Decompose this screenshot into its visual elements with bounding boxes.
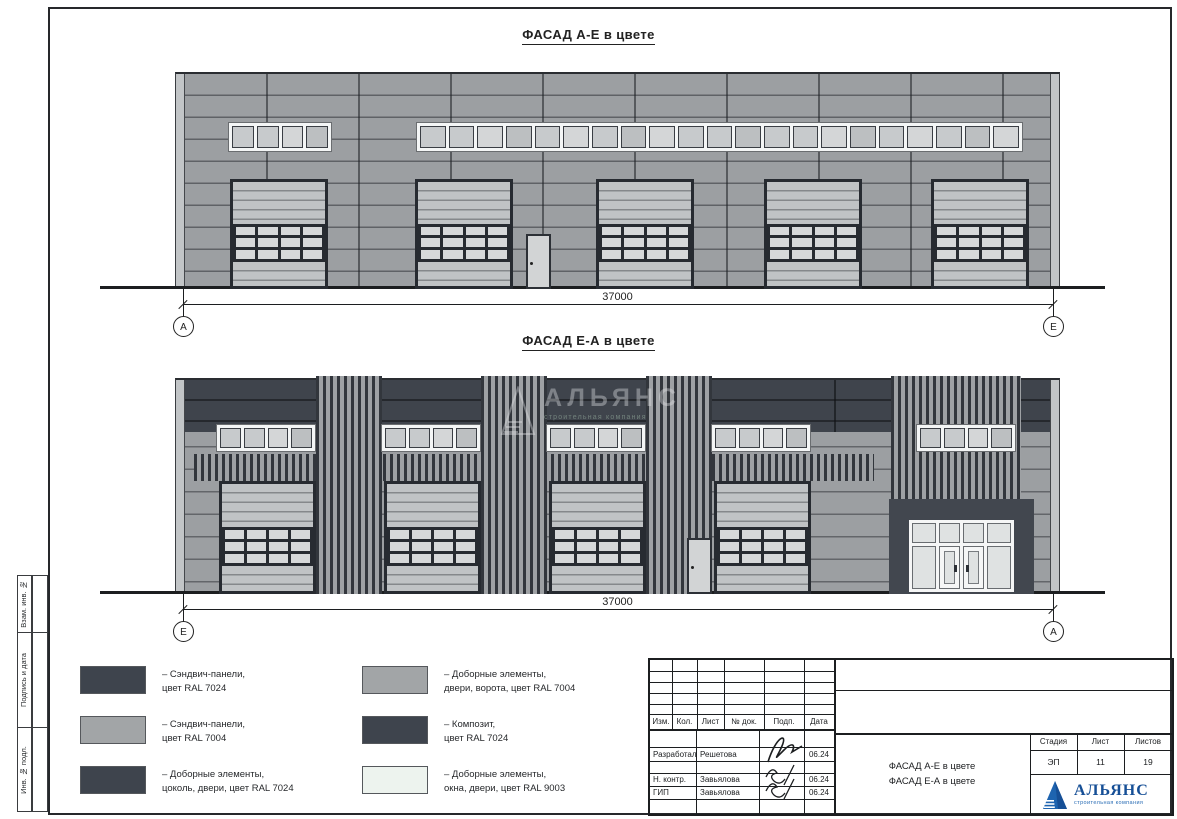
window-pane (920, 428, 941, 448)
door-window-pane (412, 554, 431, 563)
door-slats (233, 182, 325, 224)
tb-name: Завьялова (697, 786, 762, 799)
door-window-pane (281, 238, 300, 247)
window-pane (244, 428, 265, 448)
door-window-grid (233, 224, 325, 262)
tb-sheet-label: Лист (1077, 733, 1124, 750)
door-window-pane (742, 554, 761, 563)
door-window-pane (937, 238, 956, 247)
window-pane (282, 126, 304, 148)
door-window-pane (720, 554, 739, 563)
window-pane (268, 428, 289, 448)
sectional-door (384, 481, 481, 594)
sectional-door (931, 179, 1029, 289)
door-window-pane (720, 530, 739, 539)
margin-cell-empty (32, 575, 48, 633)
window-pane (456, 428, 477, 448)
door-window-pane (488, 227, 507, 236)
window-pane (850, 126, 876, 148)
door-window-pane (466, 250, 485, 259)
door-slats (418, 262, 510, 286)
door-window-pane (815, 250, 834, 259)
window-pane (257, 126, 279, 148)
door-window-pane (621, 530, 640, 539)
tb-col-izm: Изм. (650, 714, 672, 729)
door-slats (233, 262, 325, 286)
window-pane (968, 428, 989, 448)
door-window-pane (236, 238, 255, 247)
door-slats (934, 262, 1026, 286)
tb-name: Завьялова (697, 773, 762, 786)
door-window-pane (236, 227, 255, 236)
window-pane (306, 126, 328, 148)
door-window-pane (770, 227, 789, 236)
margin-label: Подпись и дата (19, 653, 28, 707)
tb-stage-label: Стадия (1030, 733, 1077, 750)
door-slats (552, 566, 643, 591)
tb-sheets-label: Листов (1124, 733, 1172, 750)
door-window-pane (577, 530, 596, 539)
window-pane (477, 126, 503, 148)
window-pane (449, 126, 475, 148)
door-window-pane (599, 542, 618, 551)
door-window-pane (599, 554, 618, 563)
door-slats (418, 182, 510, 224)
window-pane (433, 428, 454, 448)
sectional-door (549, 481, 646, 594)
window-pane (739, 428, 760, 448)
window-pane (715, 428, 736, 448)
door-window-pane (555, 530, 574, 539)
sectional-door (219, 481, 316, 594)
window-pane (621, 126, 647, 148)
door-window-pane (247, 542, 266, 551)
entrance-door-leaf (963, 546, 984, 589)
door-window-pane (443, 250, 462, 259)
tb-role: ГИП (650, 786, 699, 799)
door-slats (222, 484, 313, 527)
window-pane (764, 126, 790, 148)
door-window-pane (225, 554, 244, 563)
door-window-pane (291, 554, 310, 563)
window-pane (506, 126, 532, 148)
window-pane (907, 126, 933, 148)
pyramid-logo-icon (1042, 780, 1068, 810)
tb-role: Разработал (650, 747, 699, 761)
window-pane (944, 428, 965, 448)
door-window-pane (421, 250, 440, 259)
ribbon-window (416, 122, 1023, 152)
margin-cell-empty (32, 632, 48, 728)
legend-item-label: – Сэндвич-панели, цвет RAL 7024 (162, 668, 245, 696)
door-window-pane (647, 238, 666, 247)
door-window-pane (225, 530, 244, 539)
dimension-line (183, 609, 1054, 610)
window-pane (550, 428, 571, 448)
tb-col-doc: № док. (724, 714, 764, 729)
door-window-grid (418, 224, 510, 262)
tb-stage-value: ЭП (1030, 750, 1077, 774)
ribbon-window (228, 122, 332, 152)
batten-cluster (316, 376, 382, 594)
window-pane (409, 428, 430, 448)
window-pane (563, 126, 589, 148)
door-window-pane (669, 238, 688, 247)
facade-ae-title: ФАСАД А-Е в цвете (0, 27, 1177, 42)
door-window-pane (959, 238, 978, 247)
door-window-pane (247, 554, 266, 563)
tb-date: 06.24 (804, 773, 834, 786)
door-window-grid (552, 527, 643, 567)
door-window-pane (621, 554, 640, 563)
door-window-pane (421, 238, 440, 247)
company-name: АЛЬЯНС (1074, 783, 1149, 799)
sidelight-pane (912, 546, 936, 589)
door-window-pane (770, 250, 789, 259)
door-window-pane (456, 554, 475, 563)
door-window-pane (982, 250, 1001, 259)
door-slats (934, 182, 1026, 224)
window-pane (598, 428, 619, 448)
entrance-door-leaf (939, 546, 960, 589)
corner-flashing (1050, 74, 1059, 286)
transom-pane (939, 523, 960, 543)
window-pane (763, 428, 784, 448)
door-window-pane (434, 554, 453, 563)
window-pane (232, 126, 254, 148)
door-window-pane (303, 227, 322, 236)
door-window-pane (258, 250, 277, 259)
window-pane (786, 428, 807, 448)
legend-swatch-ral7024 (80, 766, 146, 794)
door-window-pane (937, 227, 956, 236)
tb-date: 06.24 (804, 747, 834, 761)
margin-label: Взам. инв. № (19, 580, 28, 627)
door-window-pane (555, 542, 574, 551)
door-window-pane (647, 250, 666, 259)
tb-name: Решетова (697, 747, 762, 761)
door-window-grid (599, 224, 691, 262)
window-pane (420, 126, 446, 148)
door-slats (552, 484, 643, 527)
personnel-door (687, 538, 712, 594)
door-window-pane (1004, 250, 1023, 259)
door-window-grid (222, 527, 313, 567)
margin-cell-empty (32, 727, 48, 812)
window-pane (574, 428, 595, 448)
margin-label: Инв. № подл. (19, 746, 28, 794)
window-pane (385, 428, 406, 448)
axis-bubble-e: Е (173, 621, 194, 642)
legend-item-label: – Композит, цвет RAL 7024 (444, 718, 508, 746)
door-window-pane (602, 238, 621, 247)
door-window-pane (443, 227, 462, 236)
door-slats (222, 566, 313, 591)
door-window-pane (456, 542, 475, 551)
ribbon-window (916, 424, 1016, 452)
door-window-grid (934, 224, 1026, 262)
legend-swatch-ral9003 (362, 766, 428, 794)
sectional-door (596, 179, 694, 289)
window-pane (821, 126, 847, 148)
legend-item-label: – Доборные элементы, цоколь, двери, цвет… (162, 768, 294, 796)
transom-pane (912, 523, 936, 543)
door-slats (767, 262, 859, 286)
door-window-pane (281, 227, 300, 236)
axis-bubble-a: А (1043, 621, 1064, 642)
tb-col-data: Дата (804, 714, 834, 729)
dimension-value: 37000 (175, 596, 1060, 608)
facade-ae-elevation (175, 72, 1060, 287)
door-window-pane (390, 530, 409, 539)
window-pane (678, 126, 704, 148)
corner-flashing (176, 74, 185, 286)
door-window-pane (390, 554, 409, 563)
door-slats (387, 566, 478, 591)
door-window-pane (837, 227, 856, 236)
window-pane (535, 126, 561, 148)
window-pane (649, 126, 675, 148)
door-window-pane (621, 542, 640, 551)
sidelight-pane (987, 546, 1011, 589)
tb-sheet-value: 11 (1077, 750, 1124, 774)
window-pane (936, 126, 962, 148)
dimension-value: 37000 (175, 291, 1060, 303)
door-window-pane (258, 227, 277, 236)
door-window-pane (792, 227, 811, 236)
door-window-pane (269, 554, 288, 563)
door-window-pane (291, 542, 310, 551)
door-window-pane (764, 542, 783, 551)
door-window-pane (837, 250, 856, 259)
ribbon-window (711, 424, 811, 452)
door-slats (717, 566, 808, 591)
door-window-pane (742, 542, 761, 551)
facade-ea-title: ФАСАД Е-А в цвете (0, 333, 1177, 348)
door-window-pane (599, 530, 618, 539)
ribbon-window (546, 424, 646, 452)
tb-sheets-value: 19 (1124, 750, 1172, 774)
sectional-door (230, 179, 328, 289)
door-window-pane (720, 542, 739, 551)
legend-item-label: – Сэндвич-панели, цвет RAL 7004 (162, 718, 245, 746)
door-window-pane (412, 542, 431, 551)
door-window-pane (225, 542, 244, 551)
legend-swatch-ral7024 (80, 666, 146, 694)
door-window-pane (669, 250, 688, 259)
door-window-pane (982, 227, 1001, 236)
signature-reshetova (762, 732, 806, 766)
door-window-pane (602, 227, 621, 236)
door-window-pane (555, 554, 574, 563)
door-window-pane (786, 554, 805, 563)
tb-date: 06.24 (804, 786, 834, 799)
ribbon-window (381, 424, 481, 452)
window-pane (621, 428, 642, 448)
dimension-line (183, 304, 1054, 305)
door-window-pane (488, 250, 507, 259)
door-window-pane (959, 227, 978, 236)
door-slats (599, 262, 691, 286)
facade-ea-elevation (175, 378, 1060, 592)
entrance-storefront (909, 520, 1014, 592)
personnel-door (526, 234, 551, 289)
door-window-pane (815, 227, 834, 236)
ribbon-window (216, 424, 316, 452)
window-pane (220, 428, 241, 448)
door-window-pane (247, 530, 266, 539)
door-window-pane (982, 238, 1001, 247)
door-window-pane (742, 530, 761, 539)
door-window-grid (387, 527, 478, 567)
corner-flashing (1050, 380, 1059, 591)
tb-col-podp: Подп. (764, 714, 804, 729)
door-window-pane (792, 238, 811, 247)
window-pane (965, 126, 991, 148)
door-window-pane (624, 238, 643, 247)
door-slats (767, 182, 859, 224)
batten-cluster (481, 376, 547, 594)
company-logo: АЛЬЯНС строительная компания (1042, 778, 1168, 811)
company-tagline: строительная компания (1074, 800, 1149, 806)
window-pane (993, 126, 1019, 148)
door-window-pane (770, 238, 789, 247)
legend-swatch-ral7004 (362, 666, 428, 694)
tb-col-list: Лист (697, 714, 724, 729)
door-window-pane (236, 250, 255, 259)
door-window-grid (767, 224, 859, 262)
door-window-pane (647, 227, 666, 236)
door-window-pane (269, 542, 288, 551)
sectional-door (714, 481, 811, 594)
door-window-pane (959, 250, 978, 259)
door-window-pane (303, 250, 322, 259)
door-window-pane (258, 238, 277, 247)
door-window-pane (488, 238, 507, 247)
tb-role: Н. контр. (650, 773, 699, 786)
door-window-pane (577, 542, 596, 551)
window-pane (592, 126, 618, 148)
window-pane (991, 428, 1012, 448)
door-slats (387, 484, 478, 527)
door-window-pane (466, 227, 485, 236)
door-window-pane (815, 238, 834, 247)
door-window-pane (786, 530, 805, 539)
door-window-pane (291, 530, 310, 539)
door-window-pane (577, 554, 596, 563)
door-window-pane (837, 238, 856, 247)
door-window-pane (443, 238, 462, 247)
legend-item-label: – Доборные элементы, окна, двери, цвет R… (444, 768, 565, 796)
legend-item-label: – Доборные элементы, двери, ворота, цвет… (444, 668, 575, 696)
margin-cell-vzam: Взам. инв. № (17, 575, 32, 633)
margin-cell-podpis: Подпись и дата (17, 632, 32, 728)
door-window-pane (269, 530, 288, 539)
door-window-pane (303, 238, 322, 247)
door-window-pane (421, 227, 440, 236)
tb-col-kol: Кол. (672, 714, 697, 729)
window-pane (793, 126, 819, 148)
sectional-door (764, 179, 862, 289)
window-pane (735, 126, 761, 148)
door-window-pane (434, 530, 453, 539)
door-window-pane (466, 238, 485, 247)
transom-pane (987, 523, 1011, 543)
door-window-pane (456, 530, 475, 539)
door-window-pane (624, 250, 643, 259)
drawing-sheet: Взам. инв. № Подпись и дата Инв. № подл.… (0, 0, 1177, 819)
signature-zavyalova (762, 777, 804, 801)
legend-swatch-ral7004 (80, 716, 146, 744)
door-window-pane (1004, 227, 1023, 236)
tb-doc-name: ФАСАД А-Е в цвете ФАСАД Е-А в цвете (834, 735, 1030, 814)
door-slats (717, 484, 808, 527)
window-pane (879, 126, 905, 148)
door-window-pane (786, 542, 805, 551)
door-window-pane (764, 554, 783, 563)
door-window-pane (1004, 238, 1023, 247)
title-block: Изм. Кол. Лист № док. Подп. Дата Разрабо… (648, 658, 1174, 816)
door-window-pane (390, 542, 409, 551)
door-window-grid (717, 527, 808, 567)
window-pane (707, 126, 733, 148)
sectional-door (415, 179, 513, 289)
transom-pane (963, 523, 984, 543)
door-window-pane (434, 542, 453, 551)
legend-swatch-ral7024 (362, 716, 428, 744)
margin-cell-inv: Инв. № подл. (17, 727, 32, 812)
door-window-pane (412, 530, 431, 539)
door-window-pane (624, 227, 643, 236)
window-pane (291, 428, 312, 448)
door-window-pane (602, 250, 621, 259)
door-window-pane (937, 250, 956, 259)
door-window-pane (669, 227, 688, 236)
door-slats (599, 182, 691, 224)
door-window-pane (281, 250, 300, 259)
corner-flashing (176, 380, 185, 591)
door-window-pane (764, 530, 783, 539)
door-window-pane (792, 250, 811, 259)
